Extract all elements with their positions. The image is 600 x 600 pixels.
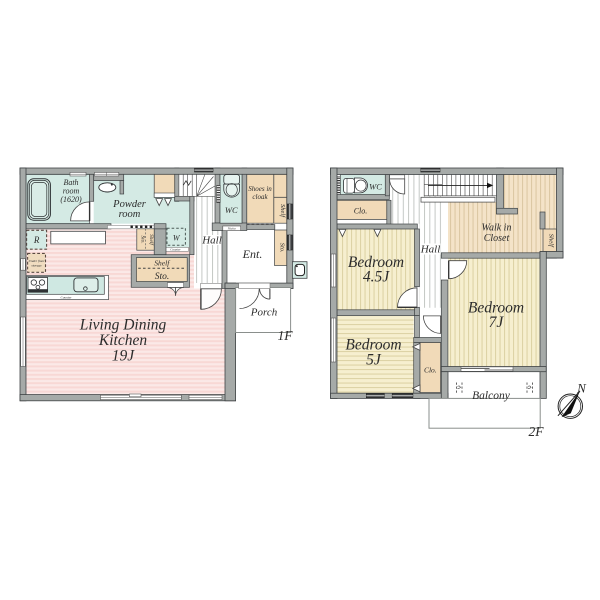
svg-text:Clo.: Clo.: [354, 207, 368, 216]
svg-text:Shelf: Shelf: [154, 259, 170, 268]
svg-text:WC: WC: [225, 205, 238, 215]
svg-text:Balcony: Balcony: [472, 390, 511, 402]
svg-text:Living Dining: Living Dining: [79, 317, 167, 334]
svg-text:Counter: Counter: [170, 248, 181, 252]
svg-text:Closet: Closet: [484, 233, 510, 244]
svg-text:storage: storage: [31, 263, 42, 267]
svg-text:2F: 2F: [529, 424, 545, 439]
svg-text:cloak: cloak: [252, 193, 268, 201]
svg-text:Hall: Hall: [201, 235, 222, 247]
svg-text:7J: 7J: [489, 314, 505, 331]
svg-text:5J: 5J: [366, 352, 382, 369]
svg-text:R: R: [33, 235, 40, 245]
svg-text:4.5J: 4.5J: [363, 269, 390, 286]
svg-text:1F: 1F: [278, 328, 294, 343]
svg-text:(1620): (1620): [60, 195, 82, 204]
svg-text:Under floor: Under floor: [28, 259, 45, 263]
svg-text:Clo.: Clo.: [424, 365, 437, 374]
svg-text:Hall: Hall: [420, 244, 441, 256]
svg-text:Shelf: Shelf: [548, 234, 555, 248]
svg-text:Shoes in: Shoes in: [248, 185, 272, 193]
svg-text:Counter: Counter: [60, 295, 72, 299]
svg-text:Sto.: Sto.: [279, 243, 286, 253]
svg-text:Porch: Porch: [250, 307, 278, 319]
svg-text:19J: 19J: [112, 348, 136, 365]
svg-text:Shelf: Shelf: [279, 204, 286, 218]
svg-text:Shelf: Shelf: [148, 234, 155, 246]
svg-text:N: N: [576, 381, 587, 396]
svg-text:Kitchen: Kitchen: [98, 332, 147, 349]
svg-text:Nicho: Nicho: [227, 227, 236, 231]
svg-text:Sto.: Sto.: [155, 272, 170, 282]
svg-text:room: room: [119, 209, 141, 220]
svg-text:Walk in: Walk in: [482, 223, 512, 234]
svg-text:WC: WC: [369, 182, 382, 192]
svg-text:Sto.: Sto.: [139, 235, 145, 243]
svg-text:Ent.: Ent.: [242, 247, 263, 261]
